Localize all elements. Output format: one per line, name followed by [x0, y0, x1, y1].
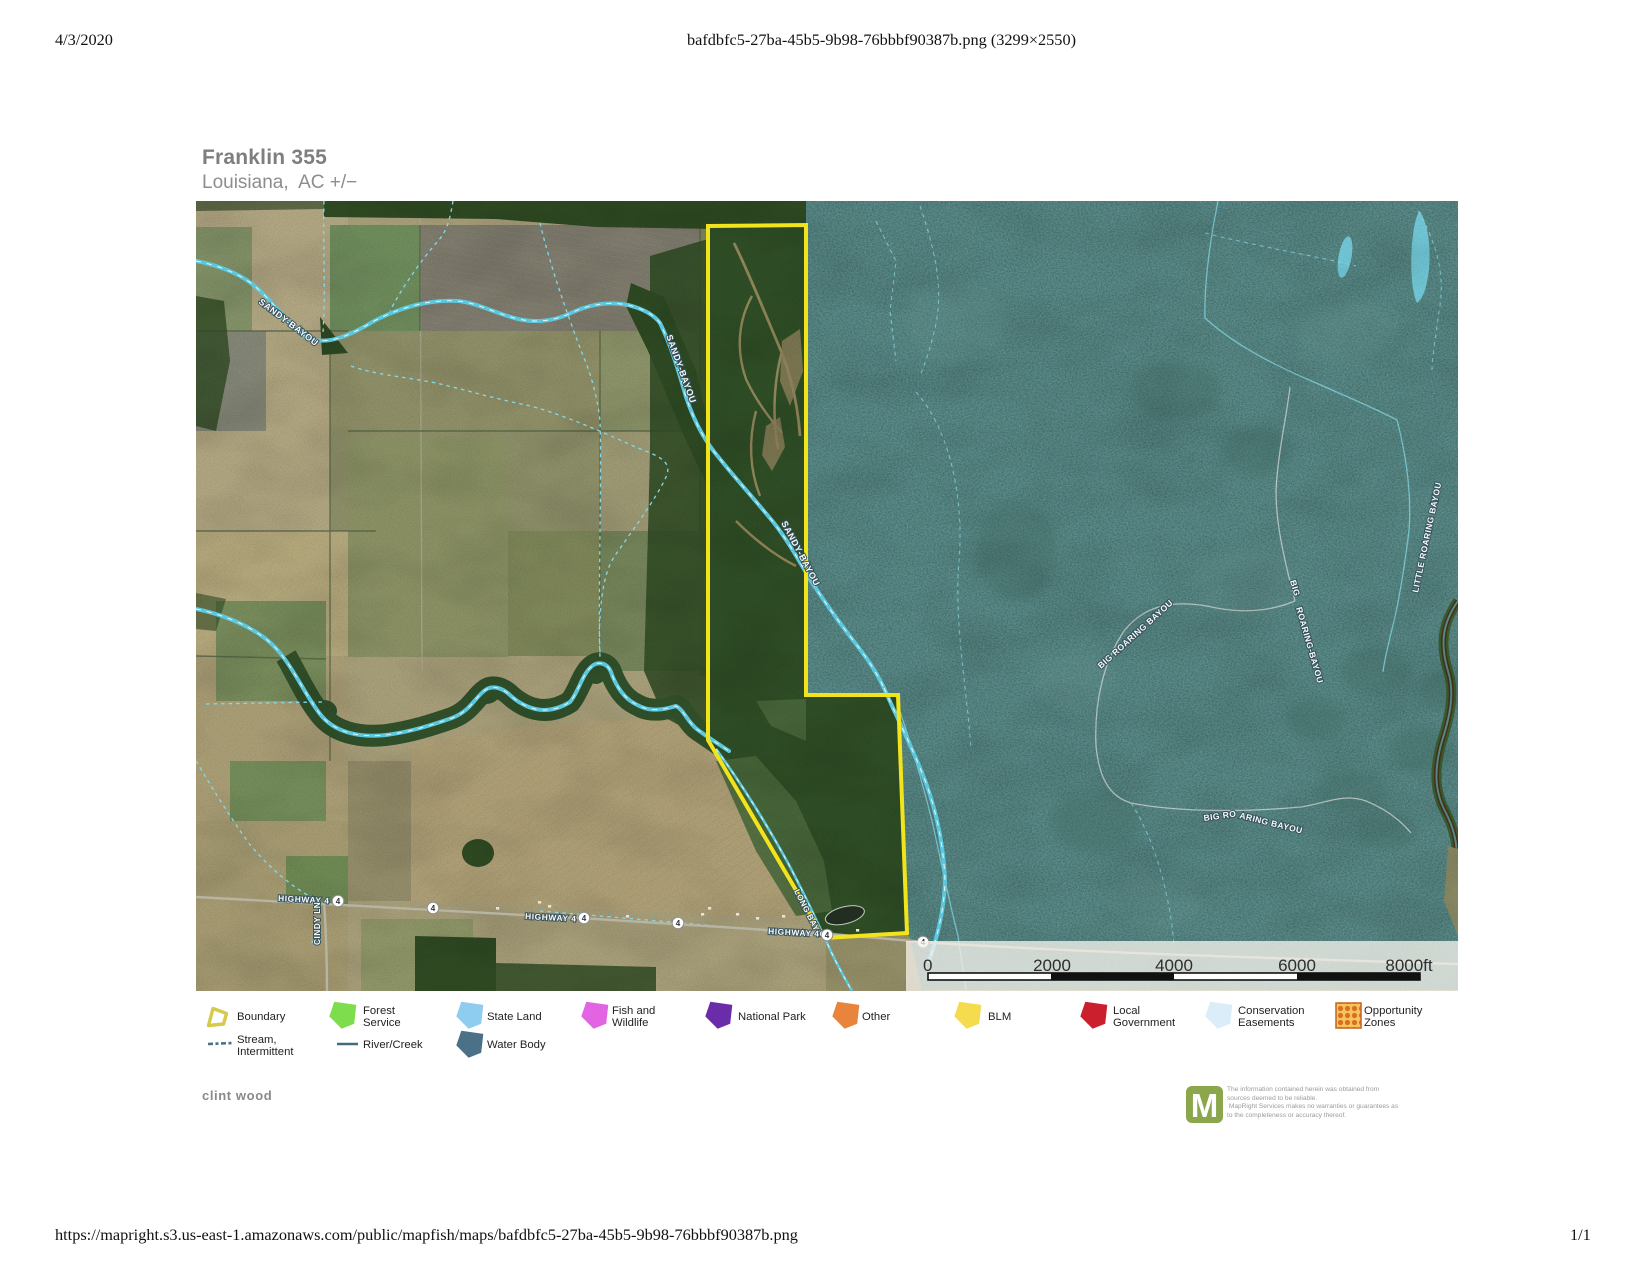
- svg-text:Service: Service: [363, 1017, 401, 1029]
- svg-text:4: 4: [676, 919, 681, 928]
- svg-text:State Land: State Land: [487, 1011, 542, 1023]
- svg-text:Fish and: Fish and: [612, 1005, 655, 1017]
- svg-text:4000: 4000: [1155, 956, 1193, 975]
- svg-text:Zones: Zones: [1364, 1017, 1396, 1029]
- svg-text:Water Body: Water Body: [487, 1039, 546, 1051]
- svg-text:BLM: BLM: [988, 1011, 1011, 1023]
- svg-text:Forest: Forest: [363, 1005, 396, 1017]
- svg-text:Local: Local: [1113, 1005, 1140, 1017]
- svg-text:National Park: National Park: [738, 1011, 806, 1023]
- svg-text:Government: Government: [1113, 1017, 1176, 1029]
- svg-text:CINDY LN: CINDY LN: [313, 902, 322, 945]
- svg-text:Other: Other: [862, 1011, 890, 1023]
- svg-text:Easements: Easements: [1238, 1017, 1295, 1029]
- svg-text:4: 4: [336, 897, 341, 906]
- svg-text:Boundary: Boundary: [237, 1011, 286, 1023]
- svg-text:Opportunity: Opportunity: [1364, 1005, 1423, 1017]
- svg-text:4: 4: [431, 904, 436, 913]
- svg-text:4: 4: [582, 914, 587, 923]
- svg-text:6000: 6000: [1278, 956, 1316, 975]
- svg-text:0: 0: [923, 956, 932, 975]
- svg-text:Stream,: Stream,: [237, 1034, 277, 1046]
- svg-text:Intermittent: Intermittent: [237, 1046, 294, 1058]
- svg-text:2000: 2000: [1033, 956, 1071, 975]
- svg-text:8000ft: 8000ft: [1385, 956, 1433, 975]
- svg-text:Wildlife: Wildlife: [612, 1017, 648, 1029]
- svg-text:River/Creek: River/Creek: [363, 1039, 423, 1051]
- svg-text:Conservation: Conservation: [1238, 1005, 1305, 1017]
- svg-text:4: 4: [825, 931, 830, 940]
